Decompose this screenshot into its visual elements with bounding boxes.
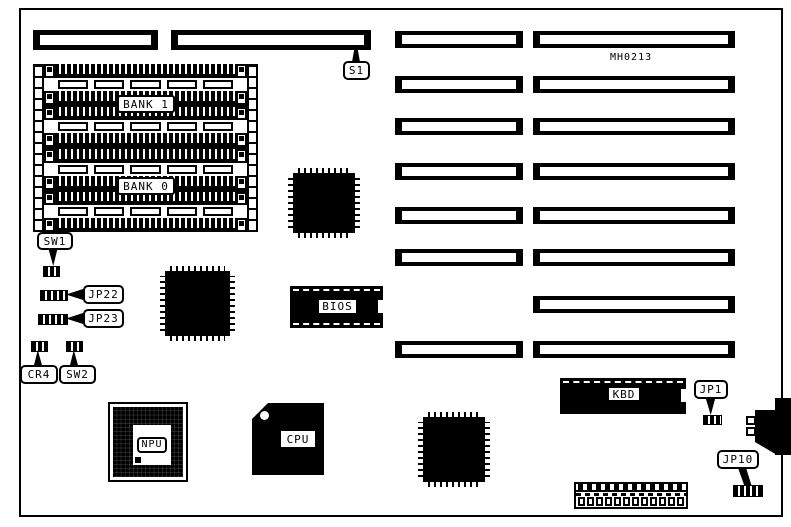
bank0-label-text: BANK 0 [123,180,169,193]
bios-label-text: BIOS [322,300,353,313]
simm-socket-row [44,64,247,78]
jp23-label-text: JP23 [88,312,119,325]
npu-label: NPU [137,437,166,453]
simm-socket-row [44,218,247,232]
simm-socket-row [44,133,247,147]
qfp-chip [293,173,355,233]
kbd-dashed-edge [563,381,683,383]
bios-dashed-edge [293,323,380,325]
simm-chips-row [44,205,247,218]
sw2-label: SW2 [59,365,96,384]
expansion-slot-long [533,296,735,313]
expansion-slot-short [395,31,523,48]
expansion-slot-long [533,249,735,266]
jp10-label: JP10 [717,450,759,469]
keyboard-connector-pin [746,427,756,436]
cpu-label: CPU [281,431,315,447]
kbd-chip: KBD [560,378,686,414]
bank1-label: BANK 1 [117,95,175,113]
power-connector [574,482,688,509]
cr4-label: CR4 [20,365,58,384]
jp10-label-text: JP10 [723,453,754,466]
expansion-slot-long [533,207,735,224]
cpu-pin1-dot [260,411,269,420]
expansion-slot-short [395,118,523,135]
expansion-slot-long [533,341,735,358]
expansion-slot-short [395,76,523,93]
cr4-label-text: CR4 [28,368,51,381]
bus-slot-s1 [171,30,371,50]
expansion-slot-short [395,207,523,224]
qfp-chip [423,417,485,482]
bank1-label-text: BANK 1 [123,98,169,111]
bios-notch [378,300,385,313]
bios-chip: BIOS [290,286,383,328]
simm-rail-right [247,64,258,232]
kbd-notch [681,389,688,402]
s1-label-text: S1 [349,64,364,77]
sw2-label-text: SW2 [66,368,89,381]
expansion-slot-long [533,31,735,48]
cpu-chip: CPU [252,403,324,475]
expansion-slot-long [533,163,735,180]
power-connector-pins-top [576,484,686,492]
jp22-jumper [40,290,68,301]
cpu-label-text: CPU [287,433,310,446]
expansion-slot-long [533,76,735,93]
npu-pin1-mark [135,457,141,463]
board-model: MH0213 [610,52,652,63]
expansion-slot-short [395,249,523,266]
jp22-label-text: JP22 [88,288,119,301]
simm-chips-row [44,78,247,91]
qfp-chip [165,271,230,336]
jp1-label: JP1 [694,380,728,399]
power-connector-sockets [576,496,686,507]
simm-socket-row [44,149,247,163]
sw1-label: SW1 [37,232,73,250]
motherboard-diagram: S1 BANK 1 BANK 0 SW [0,0,791,527]
jp10-jumper [733,485,763,497]
expansion-slot-long [533,118,735,135]
jp23-jumper [38,314,68,325]
kbd-label: KBD [607,386,641,402]
keyboard-connector-body [755,410,787,442]
cr4-jumper [31,341,48,352]
memory-bank-sockets: BANK 1 BANK 0 [33,64,258,232]
bios-dashed-edge [293,289,380,291]
bank0-label: BANK 0 [117,177,175,195]
npu-label-text: NPU [141,439,162,450]
sw2-jumper [66,341,83,352]
jp22-label: JP22 [83,285,124,304]
simm-chips-row [44,120,247,133]
keyboard-connector-pin [746,416,756,425]
expansion-slot-short [395,163,523,180]
bios-label: BIOS [317,298,358,315]
bus-slot [33,30,158,50]
simm-chips-row [44,163,247,176]
sw1-jumper [43,266,60,277]
kbd-label-text: KBD [613,388,636,401]
simm-rows [44,64,247,232]
sw1-label-text: SW1 [44,235,67,248]
expansion-slot-short [395,341,523,358]
npu-socket: NPU [108,402,188,482]
simm-rail-left [33,64,44,232]
jp23-label: JP23 [83,309,124,328]
jp1-jumper [703,415,722,425]
s1-label: S1 [343,61,370,80]
jp1-label-text: JP1 [700,383,723,396]
